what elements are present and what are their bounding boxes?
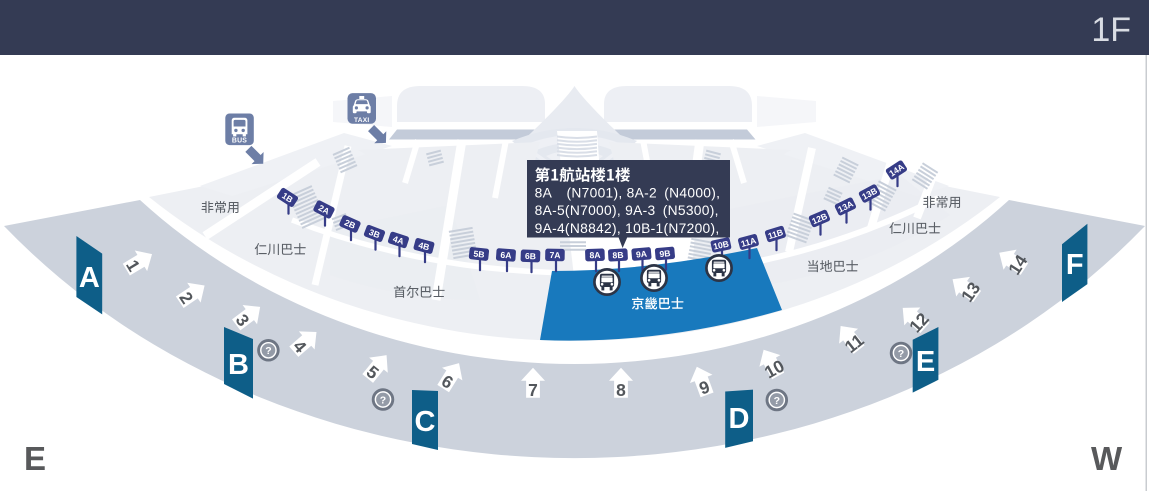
svg-text:?: ? — [265, 345, 271, 357]
svg-text:9A-4(N8842), 10B-1(N7200),: 9A-4(N8842), 10B-1(N7200), — [535, 221, 720, 236]
svg-text:?: ? — [898, 348, 904, 360]
svg-text:TAXI: TAXI — [354, 117, 369, 124]
svg-text:A: A — [79, 262, 100, 294]
svg-text:D: D — [729, 403, 750, 435]
svg-text:C: C — [415, 406, 436, 438]
svg-text:8A: 8A — [589, 250, 600, 260]
svg-text:B: B — [228, 349, 249, 381]
svg-text:BUS: BUS — [232, 138, 247, 145]
svg-text:7A: 7A — [549, 250, 560, 260]
svg-text:8A (N7001), 8A-2 (N4000),: 8A (N7001), 8A-2 (N4000), — [535, 185, 721, 200]
svg-text:6B: 6B — [525, 251, 536, 261]
svg-text:F: F — [1066, 249, 1084, 281]
svg-text:E: E — [24, 440, 46, 477]
svg-text:9B: 9B — [659, 248, 671, 259]
svg-text:8B: 8B — [612, 250, 624, 261]
svg-text:W: W — [1091, 440, 1123, 477]
svg-text:1F: 1F — [1091, 11, 1131, 49]
svg-text:E: E — [916, 346, 935, 378]
svg-text:7: 7 — [528, 380, 538, 400]
svg-text:?: ? — [774, 395, 780, 407]
svg-text:6A: 6A — [500, 250, 512, 261]
svg-text:8A-5(N7000), 9A-3 (N5300),: 8A-5(N7000), 9A-3 (N5300), — [535, 203, 719, 218]
svg-text:5B: 5B — [473, 249, 485, 260]
svg-text:9A: 9A — [636, 249, 648, 260]
svg-text:8: 8 — [616, 380, 626, 400]
svg-text:?: ? — [380, 394, 386, 406]
